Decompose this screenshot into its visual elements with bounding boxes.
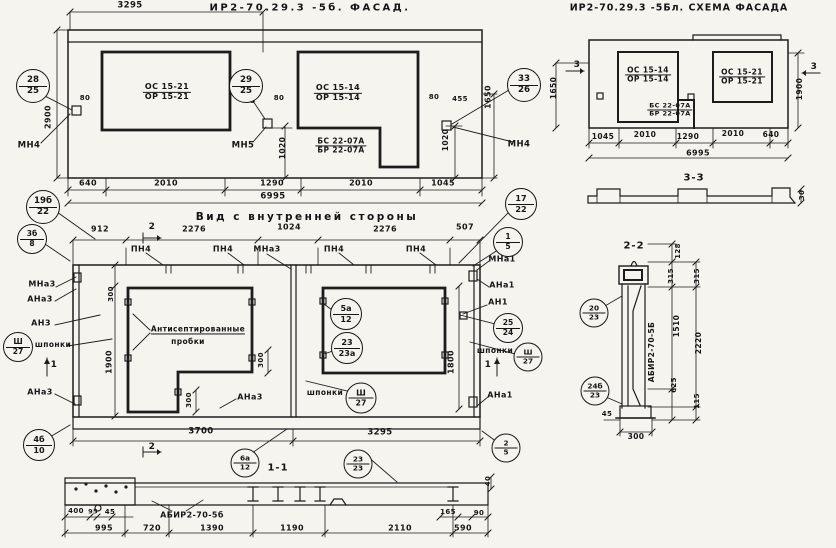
section22-dim-2220: 2220 bbox=[695, 332, 703, 354]
schema-section-marks bbox=[566, 68, 820, 76]
inner-section2-top: 2 bbox=[149, 223, 156, 233]
facade-dim-80-right: 80 bbox=[429, 94, 440, 102]
inner-dim-300-notch: 300 bbox=[186, 392, 194, 408]
section22-dim-115: 115 bbox=[694, 393, 702, 409]
facade-panel-outline bbox=[68, 30, 482, 178]
schema-dim-1290: 1290 bbox=[677, 133, 699, 141]
section22-dim-315-a: 315 bbox=[668, 268, 676, 284]
inner-mid-ana3: АНа3 bbox=[237, 394, 262, 403]
facade-dim-2010-2: 2010 bbox=[349, 180, 373, 189]
section22-dim-128: 128 bbox=[675, 243, 683, 259]
schema-dim-1900: 1900 bbox=[796, 78, 804, 100]
callout-24b-23: 24б23 bbox=[581, 377, 610, 406]
section11-dim-1390: 1390 bbox=[200, 525, 224, 534]
section11-panel-mark: АБИР2-70-5б bbox=[160, 512, 224, 521]
inner-view-dims bbox=[73, 240, 480, 446]
inner-dim-507: 507 bbox=[456, 224, 474, 233]
inner-right-shponki: шпонки bbox=[477, 347, 513, 355]
section11-dim-95: 95 bbox=[88, 508, 98, 515]
inner-rib-mna3: МНа3 bbox=[253, 246, 280, 255]
schema-section3-left: 3 bbox=[574, 61, 581, 71]
inner-section2-bottom: 2 bbox=[149, 443, 156, 453]
schema-dim-6995: 6995 bbox=[686, 150, 710, 159]
facade-dim-6995: 6995 bbox=[260, 192, 285, 201]
facade-door-mark: БС 22-07АБР 22-07А bbox=[315, 137, 366, 154]
callout-sh-27-left: Ш27 bbox=[3, 332, 33, 362]
callout-6a-12: 6а12 bbox=[231, 449, 260, 478]
section22-dim-625: 625 bbox=[671, 377, 679, 393]
callout-sh-27-right: Ш27 bbox=[514, 343, 543, 372]
callout-23-23a: 2323а bbox=[331, 332, 363, 364]
callout-17-22: 1722 bbox=[505, 188, 537, 220]
facade-dim-1020-mid: 1020 bbox=[279, 137, 287, 159]
inner-left-ana3-1: АНа3 bbox=[27, 296, 52, 305]
inner-left-an3: АН3 bbox=[31, 320, 51, 329]
schema-section3-right: 3 bbox=[811, 63, 818, 73]
inner-section1-left: 1 bbox=[51, 361, 58, 371]
facade-anchor-mn4-left: МН4 bbox=[18, 141, 41, 150]
section11-dim-995: 995 bbox=[95, 525, 113, 534]
section-1-1-dims bbox=[65, 477, 491, 537]
schema-door-mark: БС 22-07АБР 22-07А bbox=[647, 102, 692, 117]
facade-dim-455: 455 bbox=[452, 96, 468, 104]
section11-dim-590: 590 bbox=[454, 525, 472, 534]
facade-window1-mark: ОС 15-21ОР 15-21 bbox=[143, 83, 191, 101]
inner-dim-1024: 1024 bbox=[277, 224, 301, 233]
facade-dim-2010-1: 2010 bbox=[154, 180, 178, 189]
facade-dim-2900: 2900 bbox=[45, 105, 54, 129]
inner-dim-300-mid: 300 bbox=[258, 352, 266, 368]
inner-note-probki: пробки bbox=[171, 338, 205, 346]
facade-dim-1290: 1290 bbox=[260, 180, 284, 189]
inner-left-mna3: МНа3 bbox=[28, 281, 55, 290]
inner-mid-shponki: шпонки bbox=[307, 389, 343, 397]
schema-window1-mark: ОС 15-14ОР 15-14 bbox=[625, 66, 671, 83]
section11-dim-40: 40 bbox=[485, 476, 493, 487]
section11-dim-45: 45 bbox=[105, 509, 116, 517]
inner-dim-3700: 3700 bbox=[188, 427, 213, 436]
callout-29-25: 2925 bbox=[229, 69, 263, 103]
section22-dim-300: 300 bbox=[628, 433, 645, 441]
schema-dim-2010-1: 2010 bbox=[634, 131, 656, 139]
inner-dim-3295: 3295 bbox=[367, 428, 392, 437]
inner-rib-pn4-2: ПН4 bbox=[213, 246, 233, 255]
inner-right-ana1-2: АНа1 bbox=[487, 392, 512, 401]
inner-section-marks bbox=[44, 233, 500, 457]
facade-dim-lines bbox=[57, 12, 497, 203]
inner-dim-2276-b: 2276 bbox=[373, 226, 397, 235]
section-1-1-profile bbox=[65, 478, 488, 511]
section-3-3-profile bbox=[588, 188, 801, 203]
schema-dim-2010-2: 2010 bbox=[722, 130, 744, 138]
facade-anchor-mn5: МН5 bbox=[232, 141, 255, 150]
callout-2-5: 25 bbox=[492, 434, 521, 463]
section22-panel-mark: АБИР2-70-5Б bbox=[648, 322, 656, 383]
section11-dim-1190: 1190 bbox=[280, 525, 304, 534]
callout-23-23: 2323 bbox=[344, 450, 373, 479]
facade-dim-80-mid: 80 bbox=[274, 95, 285, 103]
inner-dim-912: 912 bbox=[91, 226, 109, 235]
inner-right-ana1-1: АНа1 bbox=[489, 282, 514, 291]
callout-28-25: 2825 bbox=[16, 69, 50, 103]
section22-dim-1510: 1510 bbox=[673, 315, 681, 337]
inner-rib-pn4-4: ПН4 bbox=[406, 246, 426, 255]
callout-20-23: 2023 bbox=[580, 299, 609, 328]
inner-section1-right: 1 bbox=[485, 361, 492, 371]
inner-dim-2276-a: 2276 bbox=[182, 226, 206, 235]
drawing-linework bbox=[0, 0, 836, 548]
callout-sh-27-mid: Ш27 bbox=[346, 383, 377, 414]
schema-window2-mark: ОС 15-21ОР 15-21 bbox=[719, 68, 765, 85]
inner-note-antiseptic: Антисептированные bbox=[151, 325, 245, 334]
inner-right-mna1: МНа1 bbox=[488, 256, 515, 265]
facade-dim-1020-right: 1020 bbox=[442, 129, 450, 151]
section11-dim-400: 400 bbox=[68, 508, 84, 516]
facade-dim-640: 640 bbox=[79, 180, 97, 189]
schema-dim-1045: 1045 bbox=[592, 133, 614, 141]
section-1-1-title: 1-1 bbox=[267, 463, 288, 474]
section11-dim-720: 720 bbox=[143, 525, 161, 534]
inner-left-ana3-2: АНа3 bbox=[27, 389, 52, 398]
facade-title: ИР2-70.29.3 -5б. ФАСАД. bbox=[210, 3, 411, 14]
section-2-2-title: 2-2 bbox=[623, 241, 644, 252]
schema-dim-640: 640 bbox=[763, 131, 780, 139]
callout-19b-22: 19б22 bbox=[26, 190, 60, 224]
callout-5a-12: 5а12 bbox=[330, 298, 362, 330]
facade-window2-mark: ОС 15-14ОР 15-14 bbox=[314, 84, 362, 102]
inner-view-outline bbox=[73, 265, 480, 429]
inner-rib-pn4-1: ПН4 bbox=[131, 246, 151, 255]
inner-rib-pn4-3: ПН4 bbox=[324, 246, 344, 255]
inner-view-title: Вид с внутренней стороны bbox=[196, 211, 419, 223]
facade-anchor-mn4-right: МН4 bbox=[508, 140, 531, 149]
callout-33-26: 3326 bbox=[507, 68, 541, 102]
inner-dim-1800: 1800 bbox=[448, 350, 457, 374]
inner-dim-1900: 1900 bbox=[106, 350, 115, 374]
callout-4b-10: 4б10 bbox=[23, 429, 55, 461]
section33-dim-30: 30 bbox=[799, 190, 807, 201]
schema-dim-1650: 1650 bbox=[550, 77, 558, 99]
inner-left-shponki: шпонки bbox=[35, 341, 71, 349]
facade-dim-80-left: 80 bbox=[80, 95, 91, 103]
callout-25-24: 2524 bbox=[493, 313, 523, 343]
schema-title: ИР2-70.29.3 -5Бл. СХЕМА ФАСАДА bbox=[570, 3, 789, 14]
facade-dim-1650: 1650 bbox=[485, 85, 494, 109]
section-3-3-title: 3-3 bbox=[683, 173, 704, 184]
section11-dim-165: 165 bbox=[440, 509, 456, 517]
section22-dim-315-b: 315 bbox=[694, 268, 702, 284]
callout-3b-8: 3б8 bbox=[17, 224, 47, 254]
inner-right-an1: АН1 bbox=[488, 299, 508, 308]
callout-1-5: 15 bbox=[493, 227, 523, 257]
section22-dim-45: 45 bbox=[602, 411, 613, 419]
section11-dim-2110: 2110 bbox=[388, 525, 412, 534]
blueprint-canvas: ИР2-70.29.3 -5б. ФАСАД. ИР2-70.29.3 -5Бл… bbox=[0, 0, 836, 548]
inner-dim-300-left: 300 bbox=[108, 286, 116, 302]
section11-dim-90: 90 bbox=[474, 510, 485, 518]
facade-dim-3295: 3295 bbox=[117, 1, 142, 10]
facade-dim-1045: 1045 bbox=[431, 180, 455, 189]
